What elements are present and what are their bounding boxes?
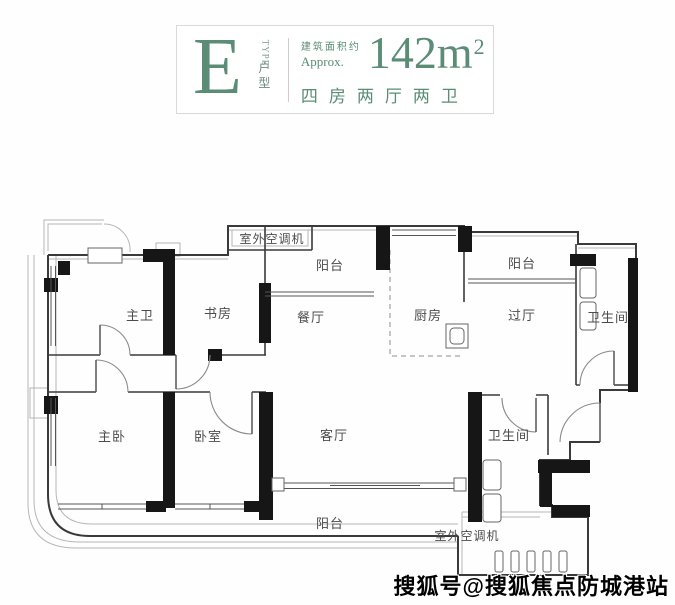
room-label: 阳台	[316, 516, 344, 531]
room-label: 卫生间	[488, 428, 530, 443]
room-label: 客厅	[320, 428, 348, 443]
floorplan-page: E TYPE 户型 建筑面积约 Approx. 142m2 四房两厅两卫	[0, 0, 675, 605]
room-label: 阳台	[508, 256, 536, 271]
room-label: 卧室	[194, 429, 222, 444]
room-label: 书房	[204, 306, 232, 321]
room-label: 卫生间	[587, 310, 629, 325]
room-label: 主卧	[98, 429, 126, 444]
room-label: 餐厅	[297, 310, 325, 325]
room-label: 室外空调机	[434, 528, 499, 543]
room-label: 室外空调机	[239, 231, 304, 246]
room-label: 厨房	[414, 308, 442, 323]
floorplan-drawing: 室外空调机阳台餐厅厨房阳台过厅卫生间主卫书房主卧卧室客厅卫生间阳台室外空调机	[0, 0, 675, 605]
watermark: 搜狐号@搜狐焦点防城港站	[394, 569, 669, 601]
room-label: 阳台	[316, 258, 344, 273]
room-label: 主卫	[126, 308, 154, 323]
room-label: 过厅	[508, 308, 536, 323]
